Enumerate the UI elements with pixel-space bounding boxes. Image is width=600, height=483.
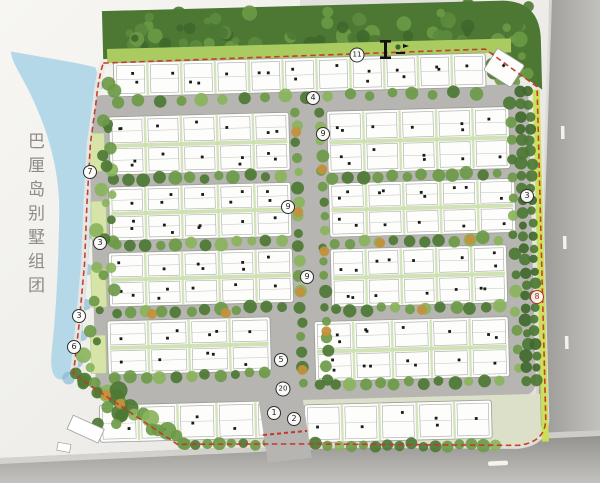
plan-marker-11: 11	[350, 48, 365, 63]
plan-title: 巴厘岛别墅组团	[22, 132, 47, 300]
plan-marker-9: 9	[316, 127, 330, 141]
plan-marker-3: 3	[520, 189, 534, 203]
plan-marker-1: 1	[267, 406, 281, 420]
site-plan-svg	[0, 0, 600, 483]
plan-marker-9: 9	[300, 270, 314, 284]
plan-marker-5: 5	[274, 353, 288, 367]
plan-marker-20: 20	[276, 382, 291, 397]
plan-marker-6: 6	[67, 340, 81, 354]
plan-marker-7: 7	[83, 165, 97, 179]
site-plan-page: 巴厘岛别墅组团 11499938733652012	[0, 0, 600, 483]
plan-marker-4: 4	[306, 91, 320, 105]
plan-marker-9: 9	[281, 200, 295, 214]
site-plan	[10, 0, 552, 469]
plan-marker-2: 2	[287, 412, 301, 426]
plan-marker-3: 3	[93, 236, 107, 250]
plan-marker-8: 8	[530, 290, 544, 304]
plan-marker-3: 3	[72, 309, 86, 323]
